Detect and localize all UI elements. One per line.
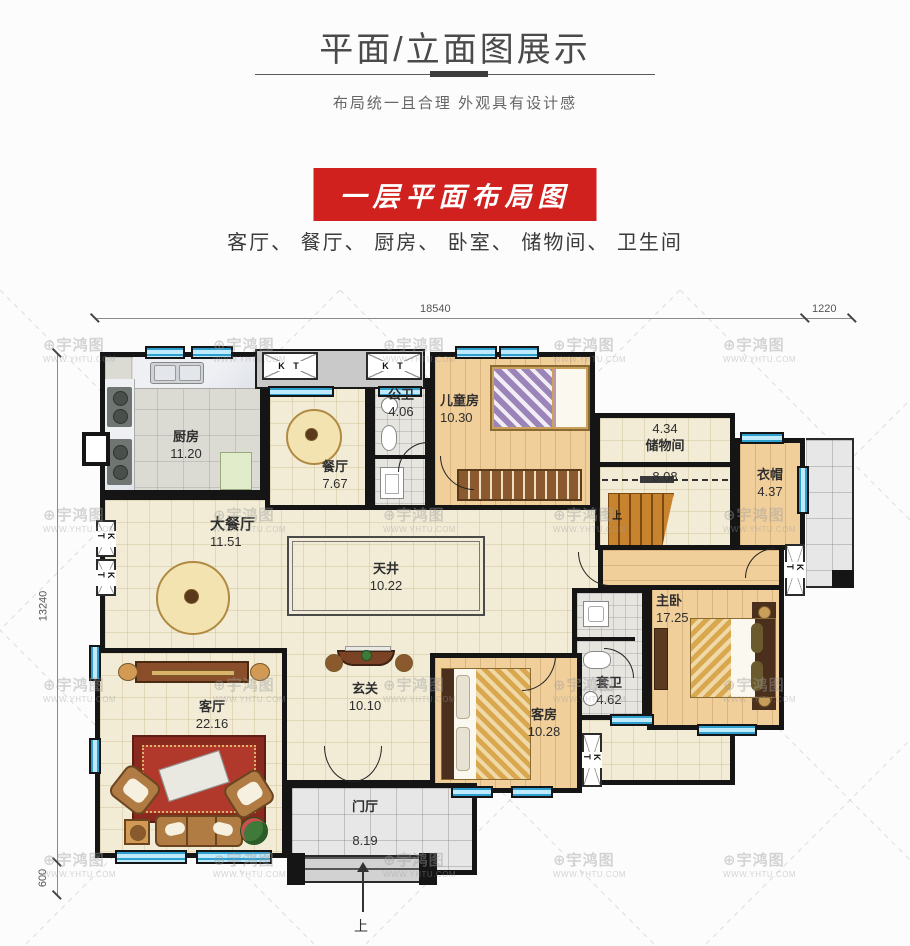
label-dining: 餐厅 7.67 [300,458,370,492]
window [610,714,654,726]
master-bed [690,618,776,698]
ensuite-divider-wall [577,637,635,641]
label-porch: 门厅 8.19 [310,798,420,849]
ac-unit-box: K T [582,733,602,787]
foyer-console [337,650,395,666]
side-terrace [806,438,854,588]
ensuite-sink [583,601,609,627]
window [196,850,272,864]
kitchen-stove-upper [107,387,132,427]
label-kids-room: 儿童房 10.30 [436,392,504,426]
label-public-bath: 公卫 4.06 [374,386,428,420]
grand-dining-table [140,545,244,649]
label-foyer: 玄关 10.10 [330,680,400,714]
window [451,786,493,798]
entry-step-pier [287,853,305,885]
window [115,850,187,864]
window [191,346,233,359]
kids-wardrobe [457,469,582,501]
kitchen-stove-lower [107,439,132,485]
label-ensuite: 套卫 4.62 [580,674,638,708]
window [89,645,101,681]
room-kitchen [100,352,265,495]
ac-unit-box: K T [96,559,116,596]
kitchen-sink [150,362,204,384]
label-kitchen: 厨房 11.20 [148,428,224,462]
entry-up-label: 上 [354,916,368,936]
stairs-up-label: 上 [612,507,622,522]
ac-unit-box: K T [262,352,318,380]
entry-step-pier [419,853,437,885]
floor-plan-page: 平面/立面图展示 布局统一且合理 外观具有设计感 一层平面布局图 客厅、 餐厅、… [0,0,910,946]
terrace-corner-block [832,570,854,588]
entry-arrow [362,868,364,912]
tv-console-end [250,663,270,681]
living-plant [240,817,268,845]
kitchen-side-niche [82,432,110,466]
window [511,786,553,798]
bath-toilet [381,425,397,451]
ac-unit-box: K T [96,520,116,557]
room-living [95,648,287,858]
kids-bed [490,365,590,431]
kitchen-appliance [220,452,252,490]
window [268,386,334,397]
label-grand-dining: 大餐厅 11.51 [210,516,300,550]
tv-console-end [118,663,138,681]
label-cloakroom: 衣帽 4.37 [737,466,803,500]
room-kids [430,352,595,510]
label-living: 客厅 22.16 [172,698,252,732]
tv-console [135,661,249,683]
window [455,346,497,359]
label-storage: 4.34 储物间 [600,420,730,454]
sofa-main [155,815,243,847]
label-master: 主卧 17.25 [650,592,726,626]
label-atrium: 天井 10.22 [287,560,485,594]
window [740,432,784,444]
side-table [124,819,150,845]
label-guest-room: 客房 10.28 [512,706,576,740]
window [145,346,185,359]
ac-unit-box: K T [366,352,422,380]
entry-arrow-head [357,862,369,872]
window [499,346,539,359]
label-stair-hall: 8.08 [600,468,730,485]
ac-unit-box: K T [785,544,805,596]
window [697,724,757,736]
master-wardrobe [654,628,668,690]
window [89,738,101,774]
floor-plan: 上 [0,0,910,946]
